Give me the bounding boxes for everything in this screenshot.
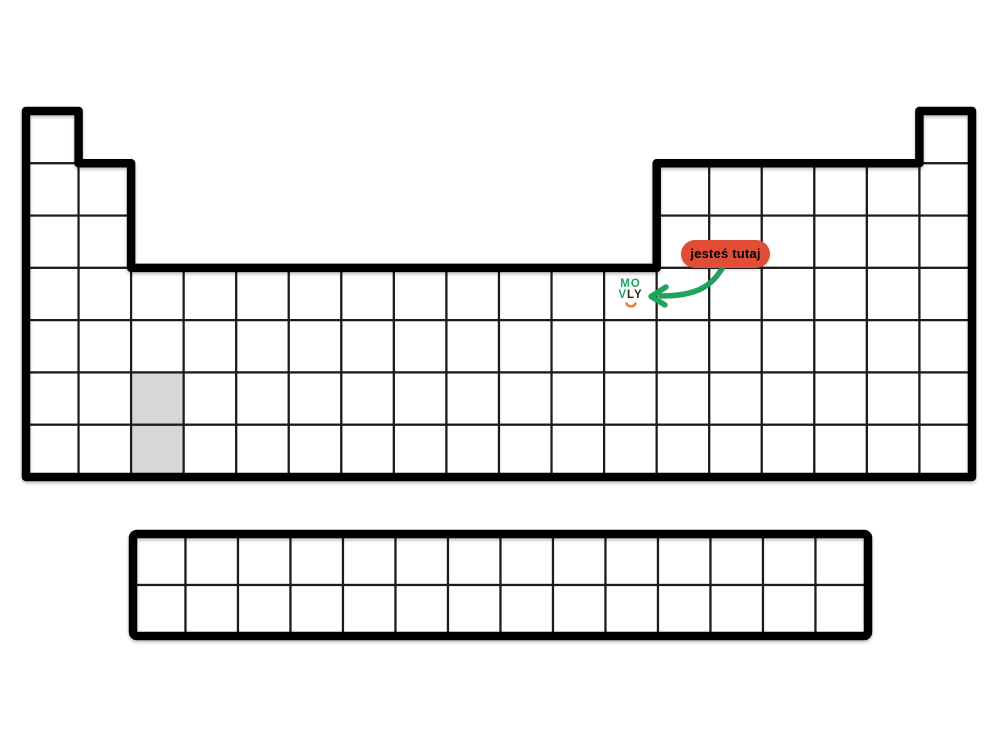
table-cell [604,425,657,477]
table-cell [184,320,237,372]
table-cell [762,163,815,215]
table-cell [814,320,867,372]
table-cell [289,320,342,372]
table-cell [341,320,394,372]
table-cell [658,534,711,585]
table-cell [79,372,132,424]
table-cell [553,585,606,636]
table-cell [919,216,972,268]
table-cell [291,585,344,636]
placeholder-cell [131,425,184,477]
table-cell [79,320,132,372]
table-cell [814,163,867,215]
table-cell [26,372,79,424]
table-cell [79,268,132,320]
table-cell [919,111,972,163]
table-cell [919,320,972,372]
table-cell [501,585,554,636]
table-cell [446,268,499,320]
table-cell [814,425,867,477]
table-cell [552,320,605,372]
table-cell [236,268,289,320]
table-cell [446,320,499,372]
table-cell [657,372,710,424]
table-cell [762,268,815,320]
table-cell [657,425,710,477]
table-cell [552,372,605,424]
table-cell [919,425,972,477]
table-cell [499,372,552,424]
table-cell [343,585,396,636]
table-cell [394,320,447,372]
table-cell [26,320,79,372]
placeholder-cell [131,372,184,424]
table-cell [762,216,815,268]
table-cell [446,425,499,477]
table-cell [709,320,762,372]
movly-logo: MO VLY [604,279,657,310]
movly-logo-ly: LY [627,289,643,301]
table-cell [26,163,79,215]
table-cell [657,163,710,215]
table-cell [919,372,972,424]
table-cell [711,585,764,636]
table-cell [867,425,920,477]
table-cell [184,425,237,477]
table-cell [709,163,762,215]
table-cell [26,425,79,477]
table-cell [553,534,606,585]
table-cell [26,216,79,268]
table-cell [867,216,920,268]
table-cell [133,534,186,585]
table-cell [499,320,552,372]
table-cell [79,163,132,215]
table-cell [236,372,289,424]
table-cell [394,268,447,320]
table-cell [552,268,605,320]
table-cell [341,372,394,424]
table-cell [919,163,972,215]
table-cell [236,425,289,477]
table-cell [236,320,289,372]
table-cell [499,268,552,320]
table-cell [709,425,762,477]
table-cell [867,372,920,424]
table-cell [26,111,79,163]
table-cell [131,320,184,372]
table-cell [762,320,815,372]
table-cell [79,216,132,268]
table-cell [396,585,449,636]
table-cell [763,534,816,585]
table-cell [604,372,657,424]
table-cell [814,372,867,424]
table-cell [501,534,554,585]
table-cell [394,425,447,477]
table-cell [26,268,79,320]
table-cell [396,534,449,585]
table-cell [186,585,239,636]
table-cell [341,268,394,320]
you-are-here-badge: jesteś tutaj [681,240,770,268]
periodic-table-diagram [0,0,1000,750]
table-cell [341,425,394,477]
table-cell [814,216,867,268]
movly-logo-bottom-letters: VLY [604,290,657,301]
table-cell [604,320,657,372]
table-cell [867,163,920,215]
table-cell [816,534,869,585]
table-cell [762,425,815,477]
table-cell [814,268,867,320]
movly-logo-v: V [618,289,627,301]
table-cell [499,425,552,477]
table-cell [131,268,184,320]
table-cell [763,585,816,636]
table-cell [184,268,237,320]
table-cell [919,268,972,320]
f-block-cells [133,534,868,636]
table-cell [289,372,342,424]
table-cell [394,372,447,424]
table-cell [343,534,396,585]
table-cell [238,585,291,636]
table-cell [446,372,499,424]
periodic-table-worksheet: MO VLY jesteś tutaj [0,0,1000,750]
table-cell [816,585,869,636]
table-cell [657,320,710,372]
table-cell [762,372,815,424]
table-cell [867,320,920,372]
table-cell [867,268,920,320]
table-cell [606,585,659,636]
table-cell [711,534,764,585]
table-cell [709,372,762,424]
table-cell [186,534,239,585]
table-cell [289,425,342,477]
table-cell [448,534,501,585]
smile-icon [624,302,638,310]
table-cell [552,425,605,477]
table-cell [79,425,132,477]
table-cell [291,534,344,585]
table-cell [238,534,291,585]
table-cell [448,585,501,636]
table-cell [606,534,659,585]
table-cell [658,585,711,636]
table-cell [184,372,237,424]
table-cell [133,585,186,636]
table-cell [289,268,342,320]
